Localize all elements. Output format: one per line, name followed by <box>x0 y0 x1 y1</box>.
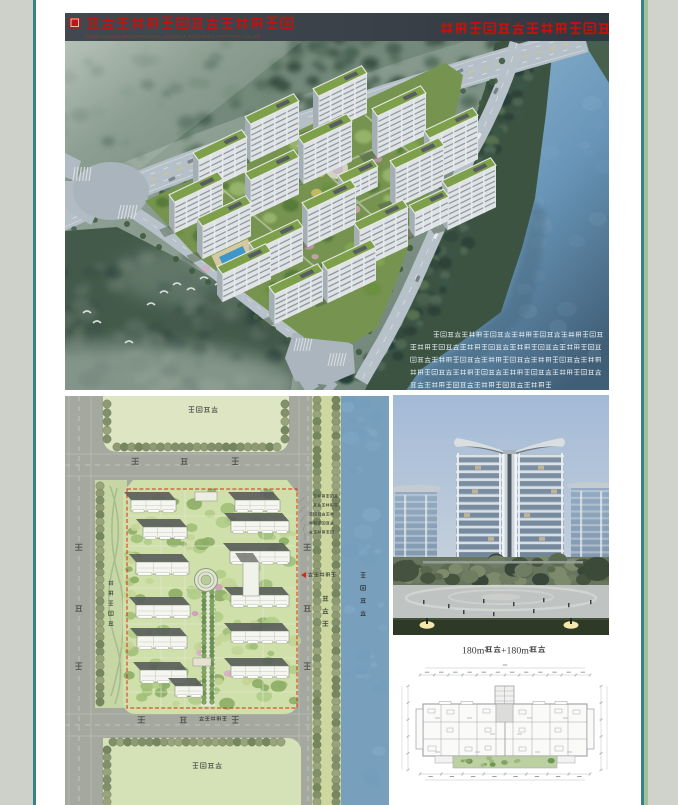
svg-text:180m²: 180m² <box>462 646 487 657</box>
svg-text:HNADI HUNAN ARCHITECTURAL DES: HNADI HUNAN ARCHITECTURAL DESIGN & RESEA… <box>86 34 261 39</box>
svg-text:+180m²: +180m² <box>501 646 532 657</box>
